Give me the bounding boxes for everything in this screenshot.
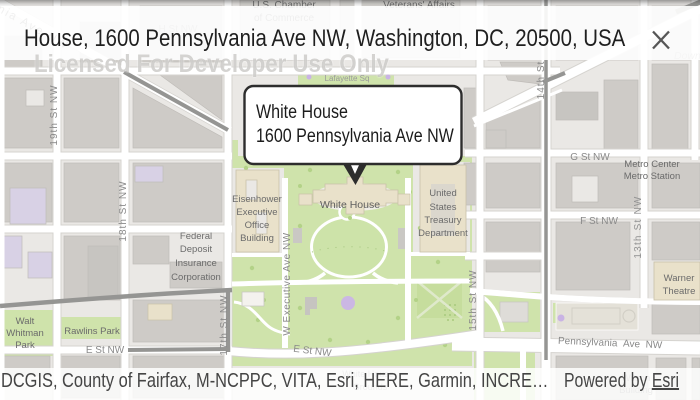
svg-text:14th St: 14th St xyxy=(536,61,547,100)
svg-text:Corporation: Corporation xyxy=(171,272,221,283)
svg-text:Metro Station: Metro Station xyxy=(624,171,681,182)
svg-text:Park: Park xyxy=(15,340,35,351)
svg-text:E St NW: E St NW xyxy=(86,345,125,356)
svg-text:Metro Center: Metro Center xyxy=(624,159,679,170)
svg-text:19th St NW: 19th St NW xyxy=(49,84,60,145)
svg-text:States: States xyxy=(430,202,457,213)
svg-text:W Executive Ave NW: W Executive Ave NW xyxy=(282,232,293,335)
svg-text:Insurance: Insurance xyxy=(175,258,217,269)
svg-text:13th St NW: 13th St NW xyxy=(633,195,644,258)
svg-text:Deposit: Deposit xyxy=(180,244,213,255)
svg-text:G St NW: G St NW xyxy=(570,152,610,163)
svg-text:F St NW: F St NW xyxy=(580,216,618,227)
svg-text:Walt: Walt xyxy=(16,316,35,327)
svg-text:Department: Department xyxy=(418,228,468,239)
svg-text:Theatre: Theatre xyxy=(663,286,696,297)
svg-text:Executive: Executive xyxy=(236,207,277,218)
svg-text:Office: Office xyxy=(245,220,270,231)
svg-text:15th St NW: 15th St NW xyxy=(468,269,479,330)
svg-text:Building: Building xyxy=(240,233,274,244)
svg-text:Warner: Warner xyxy=(664,273,695,284)
svg-text:Treasury: Treasury xyxy=(424,215,461,226)
svg-text:Federal: Federal xyxy=(180,231,212,242)
svg-text:Eisenhower: Eisenhower xyxy=(232,194,282,205)
svg-text:Whitman: Whitman xyxy=(6,328,43,339)
svg-text:White House: White House xyxy=(320,199,380,211)
svg-text:18th St NW: 18th St NW xyxy=(118,180,129,241)
svg-text:Rawlins Park: Rawlins Park xyxy=(64,326,120,337)
svg-text:17th St NW: 17th St NW xyxy=(219,294,230,355)
